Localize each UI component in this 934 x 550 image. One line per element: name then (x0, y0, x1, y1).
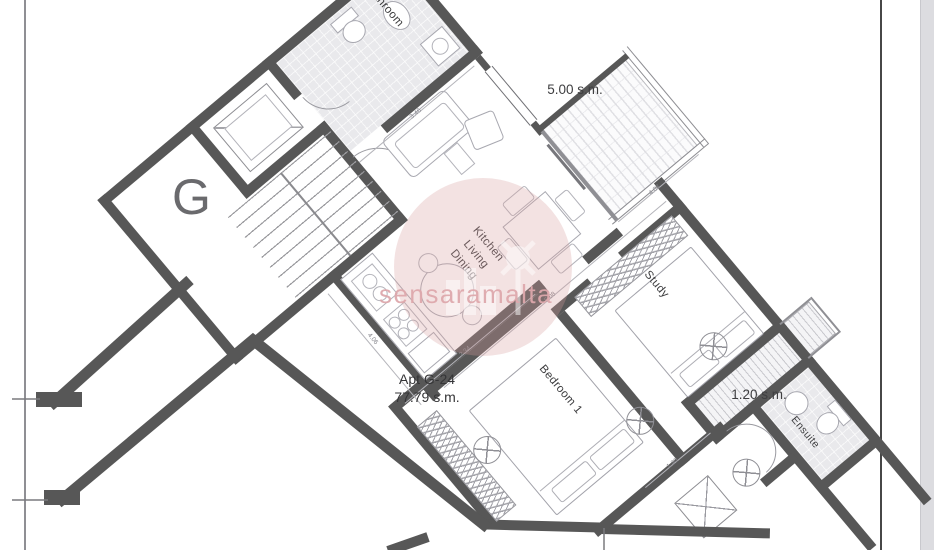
wall-bevel (487, 520, 605, 533)
block-letter: G (172, 168, 211, 226)
apartment-label: Apt G-24 77.79 s.m. (383, 370, 471, 406)
apartment-area: 77.79 s.m. (383, 388, 471, 406)
wall-bevel (602, 524, 770, 538)
shaft-area-label: 1.20 s.m. (716, 387, 802, 402)
floorplan-page: Bathroom Kitchen Living Dining Study Bed… (0, 0, 934, 550)
apartment-number: Apt G-24 (383, 370, 471, 388)
watermark-circle (394, 178, 572, 356)
balcony-area-label: 5.00 s.m. (530, 82, 620, 97)
wall (97, 194, 243, 365)
watermark-text: sensaramalta (377, 279, 555, 310)
wall (582, 228, 623, 265)
armchair (463, 109, 505, 151)
